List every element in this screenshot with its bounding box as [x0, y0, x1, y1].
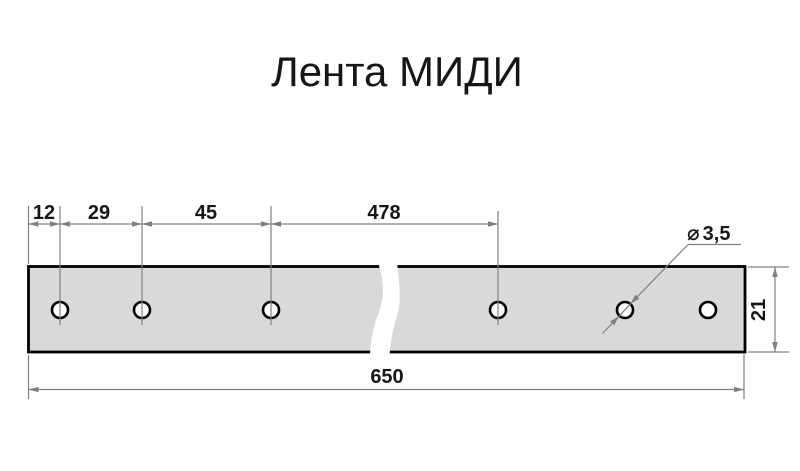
dimension-height: 21: [748, 267, 789, 352]
dimension-label-12: 12: [33, 202, 55, 224]
dimension-label-45: 45: [195, 202, 217, 224]
dimension-label-29: 29: [88, 202, 110, 224]
dimension-label-478: 478: [367, 202, 400, 224]
page-title: Лента МИДИ: [271, 48, 523, 95]
diameter-symbol: ⌀: [687, 222, 700, 245]
dimension-label-650: 650: [370, 366, 403, 388]
strip-part: [29, 261, 746, 358]
dimension-overall-length: 650: [29, 354, 745, 399]
diameter-value: 3,5: [703, 223, 731, 245]
diameter-label: ⌀3,5: [687, 222, 730, 245]
dimension-label-21: 21: [748, 299, 770, 321]
technical-drawing: Лента МИДИ 12 29 45 478 650: [0, 0, 800, 471]
drawing-canvas: Лента МИДИ 12 29 45 478 650: [0, 0, 800, 471]
hole-6: [700, 302, 716, 318]
